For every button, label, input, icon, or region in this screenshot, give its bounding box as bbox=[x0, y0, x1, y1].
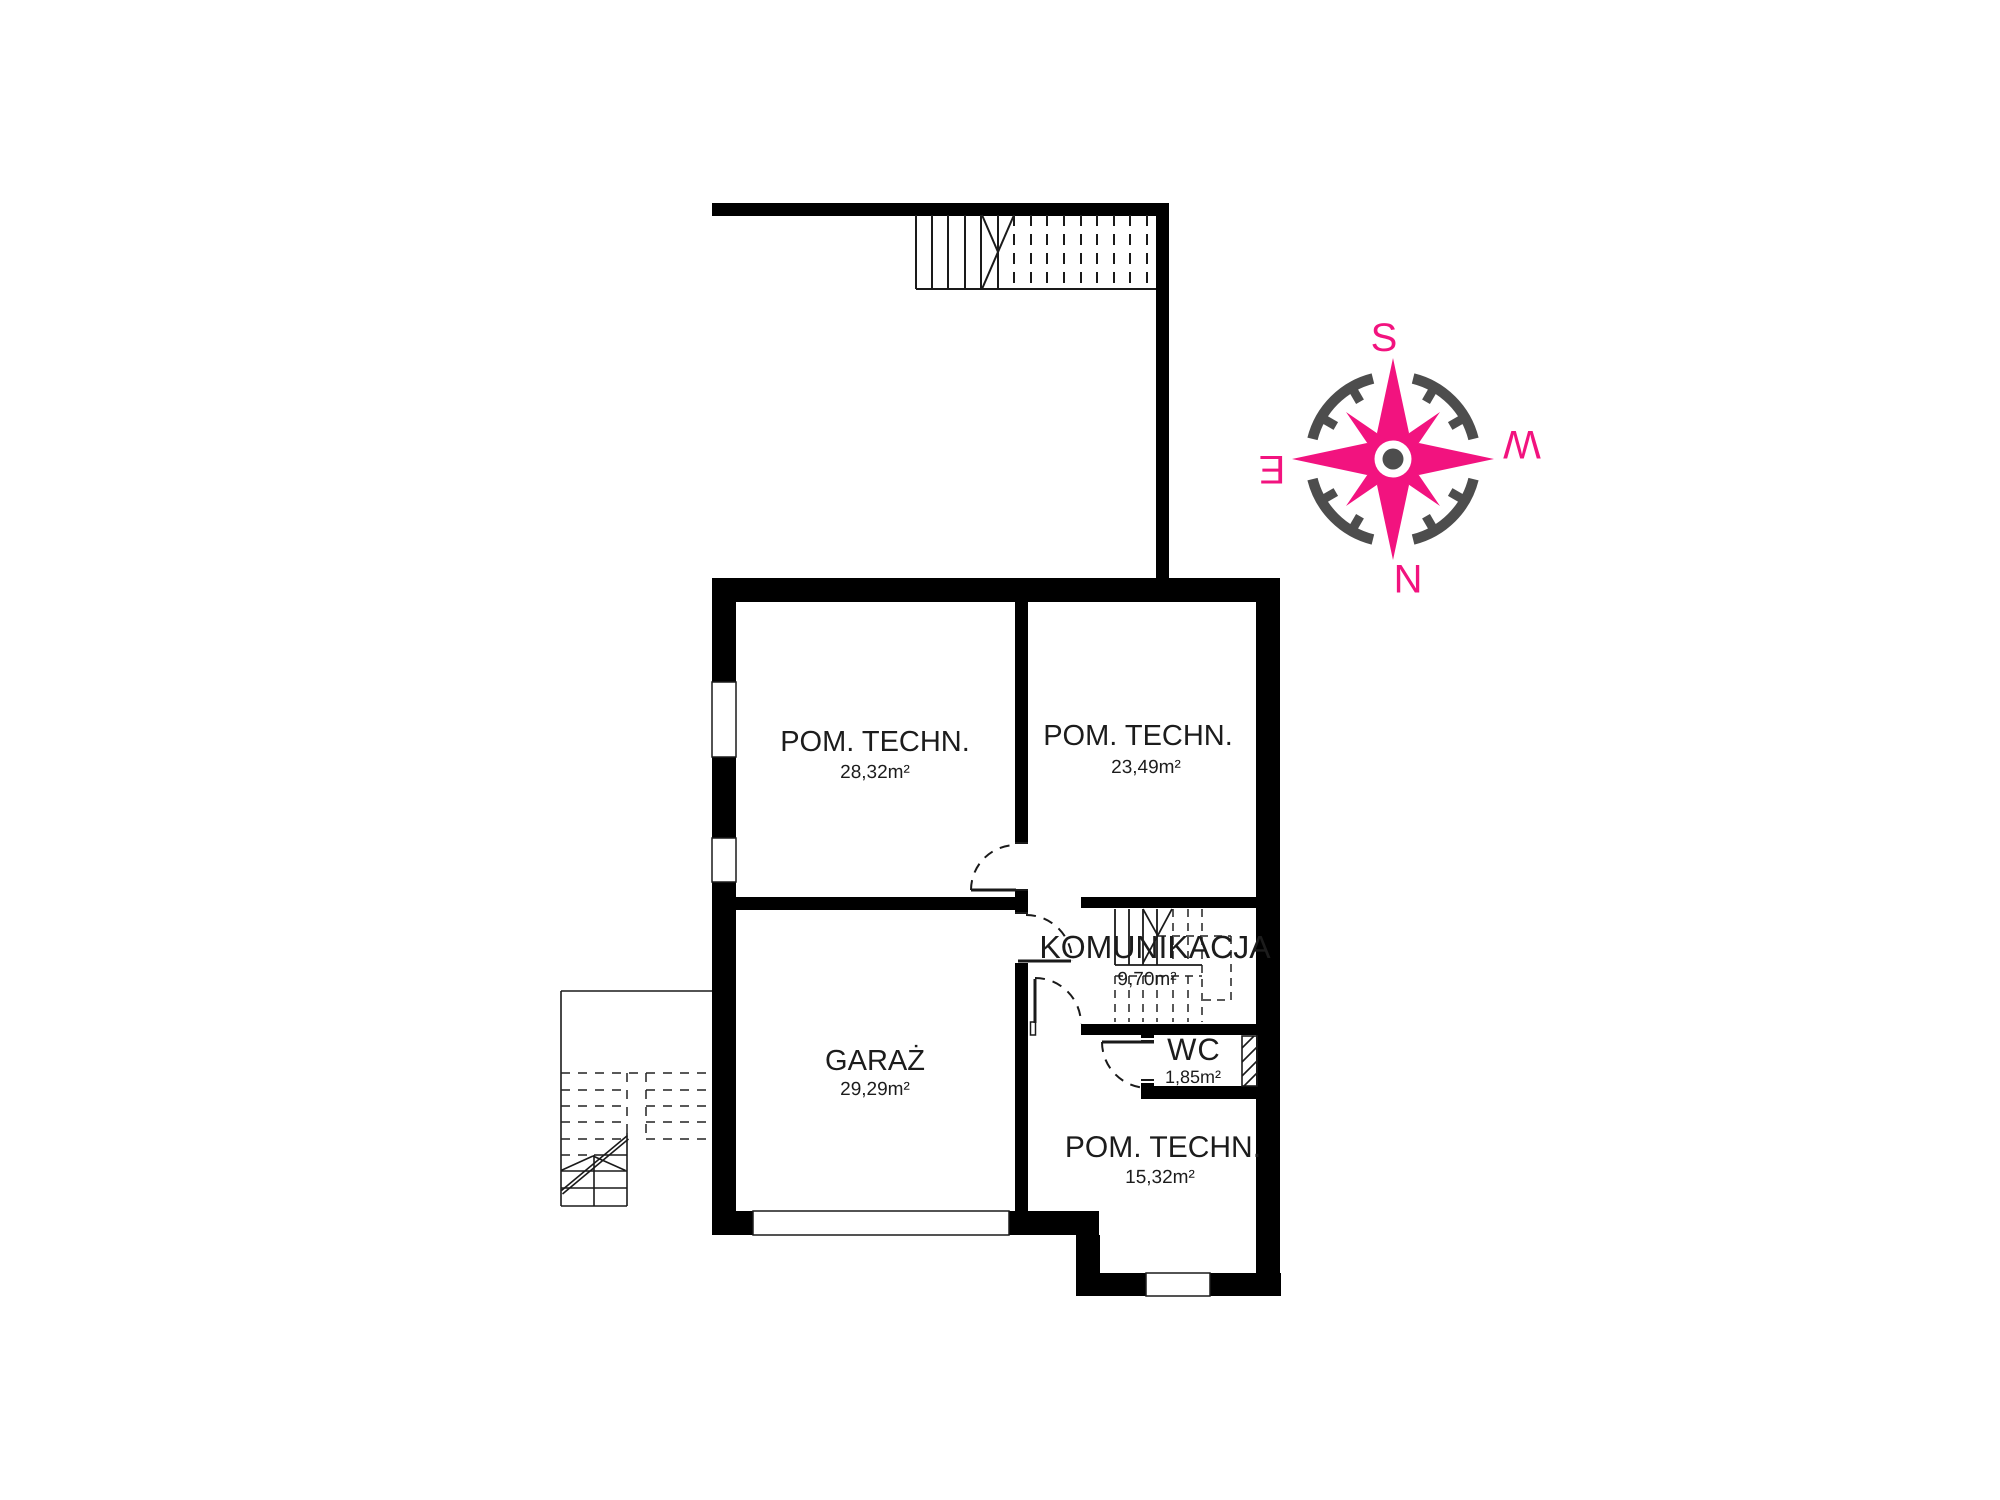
svg-text:KOMUNIKACJA: KOMUNIKACJA bbox=[1039, 929, 1271, 965]
svg-text:9,70m²: 9,70m² bbox=[1117, 969, 1176, 990]
svg-text:W: W bbox=[1503, 422, 1541, 466]
svg-text:28,32m²: 28,32m² bbox=[840, 762, 910, 783]
svg-text:POM. TECHN.: POM. TECHN. bbox=[1065, 1131, 1261, 1164]
svg-text:POM. TECHN.: POM. TECHN. bbox=[780, 726, 970, 758]
svg-text:GARAŻ: GARAŻ bbox=[825, 1044, 925, 1077]
svg-text:15,32m²: 15,32m² bbox=[1125, 1167, 1195, 1188]
svg-text:29,29m²: 29,29m² bbox=[840, 1079, 910, 1100]
svg-text:WC: WC bbox=[1167, 1032, 1221, 1067]
svg-text:E: E bbox=[1259, 447, 1286, 491]
svg-text:1,85m²: 1,85m² bbox=[1165, 1067, 1221, 1087]
svg-text:S: S bbox=[1371, 316, 1398, 360]
svg-text:23,49m²: 23,49m² bbox=[1111, 757, 1181, 778]
svg-text:N: N bbox=[1394, 556, 1423, 600]
svg-text:POM. TECHN.: POM. TECHN. bbox=[1043, 720, 1233, 752]
